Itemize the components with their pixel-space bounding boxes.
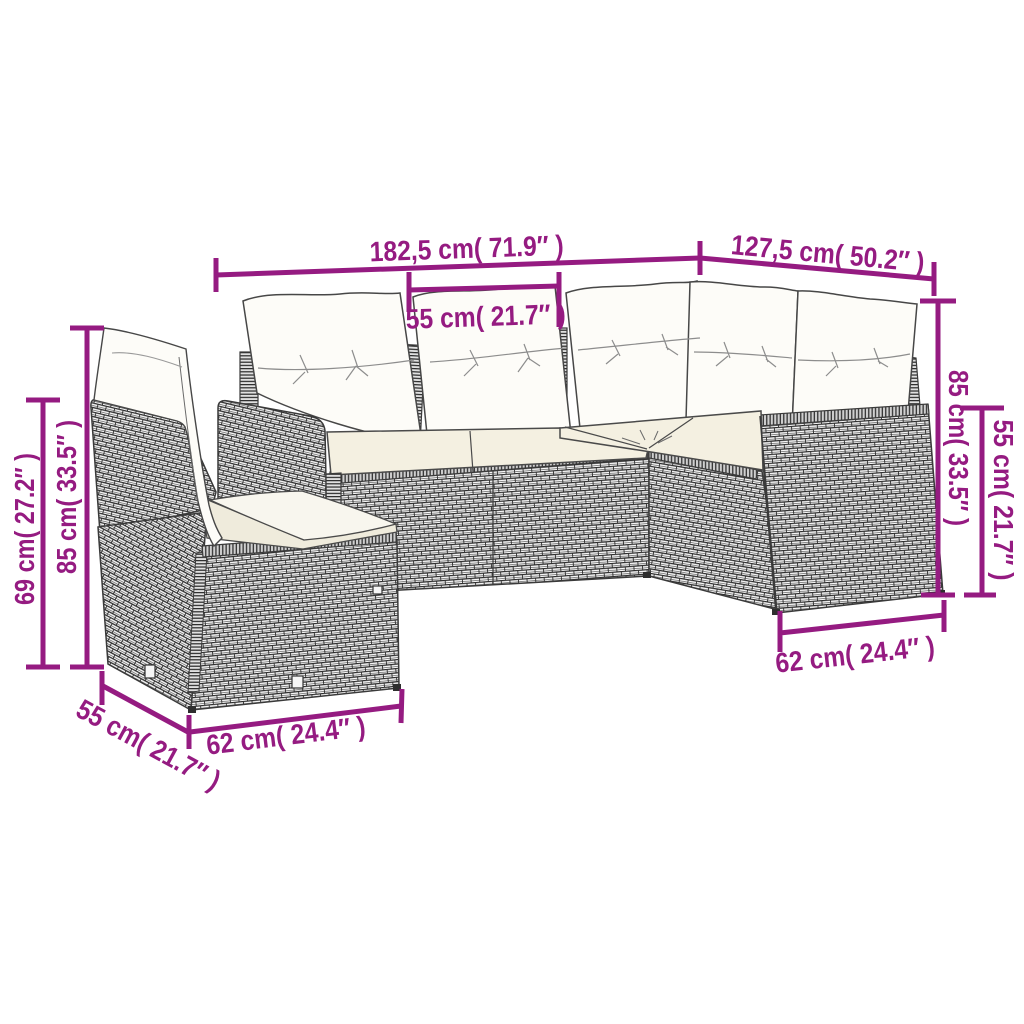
svg-text:85 cm( 33.5″ ): 85 cm( 33.5″ ) (51, 420, 82, 574)
svg-text:55 cm( 21.7″ ): 55 cm( 21.7″ ) (988, 420, 1019, 581)
svg-text:85 cm( 33.5″ ): 85 cm( 33.5″ ) (943, 370, 974, 526)
svg-text:69 cm( 27.2″ ): 69 cm( 27.2″ ) (9, 453, 40, 605)
svg-text:55 cm( 21.7″ ): 55 cm( 21.7″ ) (405, 298, 566, 335)
svg-text:62 cm( 24.4″ ): 62 cm( 24.4″ ) (774, 630, 936, 678)
